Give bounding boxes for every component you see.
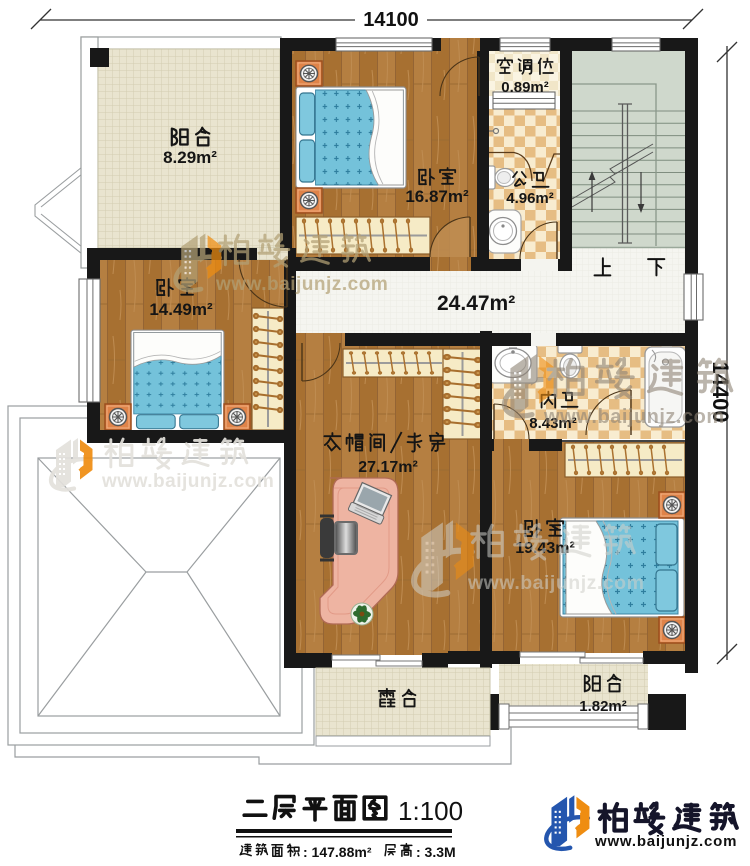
svg-text:: 3.3M: : 3.3M (416, 844, 456, 860)
svg-text:8.29m²: 8.29m² (163, 148, 217, 167)
svg-text:4.96m²: 4.96m² (506, 190, 554, 207)
svg-text:www.baijunjz.com: www.baijunjz.com (543, 406, 725, 428)
svg-text:16.87m²: 16.87m² (405, 187, 469, 206)
svg-text:www.baijunjz.com: www.baijunjz.com (101, 471, 274, 492)
svg-text:www.baijunjz.com: www.baijunjz.com (467, 572, 644, 594)
svg-text:14.49m²: 14.49m² (149, 300, 213, 319)
svg-text:1.82m²: 1.82m² (579, 698, 627, 715)
svg-text:www.baijunjz.com: www.baijunjz.com (594, 833, 737, 850)
svg-text:27.17m²: 27.17m² (358, 459, 418, 476)
svg-text:0.89m²: 0.89m² (501, 79, 549, 96)
svg-text:24.47m²: 24.47m² (437, 292, 515, 315)
svg-text:1:100: 1:100 (398, 796, 463, 826)
svg-text:www.baijunjz.com: www.baijunjz.com (215, 274, 388, 295)
svg-text:14100: 14100 (363, 9, 419, 31)
svg-text:: 147.88m²: : 147.88m² (303, 844, 372, 860)
